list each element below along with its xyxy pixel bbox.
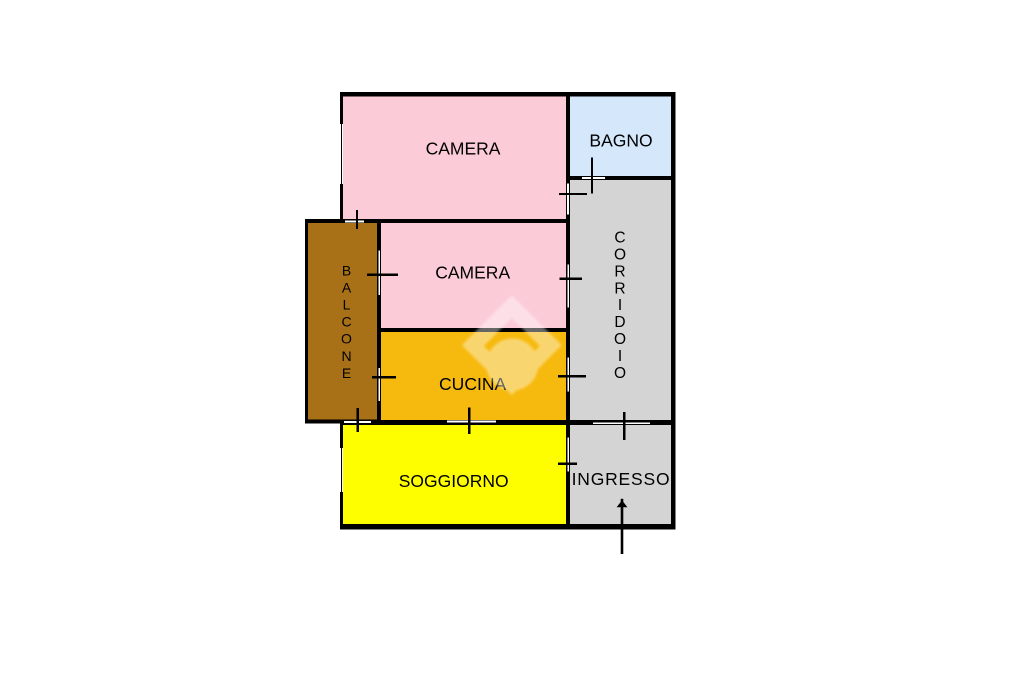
svg-text:O: O	[614, 331, 626, 348]
svg-text:N: N	[341, 348, 351, 364]
svg-text:B: B	[342, 262, 351, 278]
svg-text:I: I	[618, 348, 622, 365]
svg-text:C: C	[341, 314, 351, 330]
svg-text:I: I	[618, 297, 622, 314]
svg-text:O: O	[614, 365, 626, 382]
svg-text:O: O	[341, 331, 352, 347]
svg-text:CAMERA: CAMERA	[435, 263, 510, 283]
svg-text:C: C	[614, 230, 625, 247]
svg-text:CAMERA: CAMERA	[426, 138, 501, 158]
svg-text:D: D	[614, 314, 625, 331]
svg-text:R: R	[614, 263, 625, 280]
svg-text:E: E	[342, 365, 351, 381]
svg-text:SOGGIORNO: SOGGIORNO	[399, 471, 509, 491]
svg-text:R: R	[614, 280, 625, 297]
svg-text:BAGNO: BAGNO	[589, 131, 652, 151]
svg-text:O: O	[614, 247, 626, 264]
svg-text:L: L	[343, 297, 351, 313]
svg-text:INGRESSO: INGRESSO	[572, 469, 671, 489]
svg-text:A: A	[342, 279, 352, 295]
